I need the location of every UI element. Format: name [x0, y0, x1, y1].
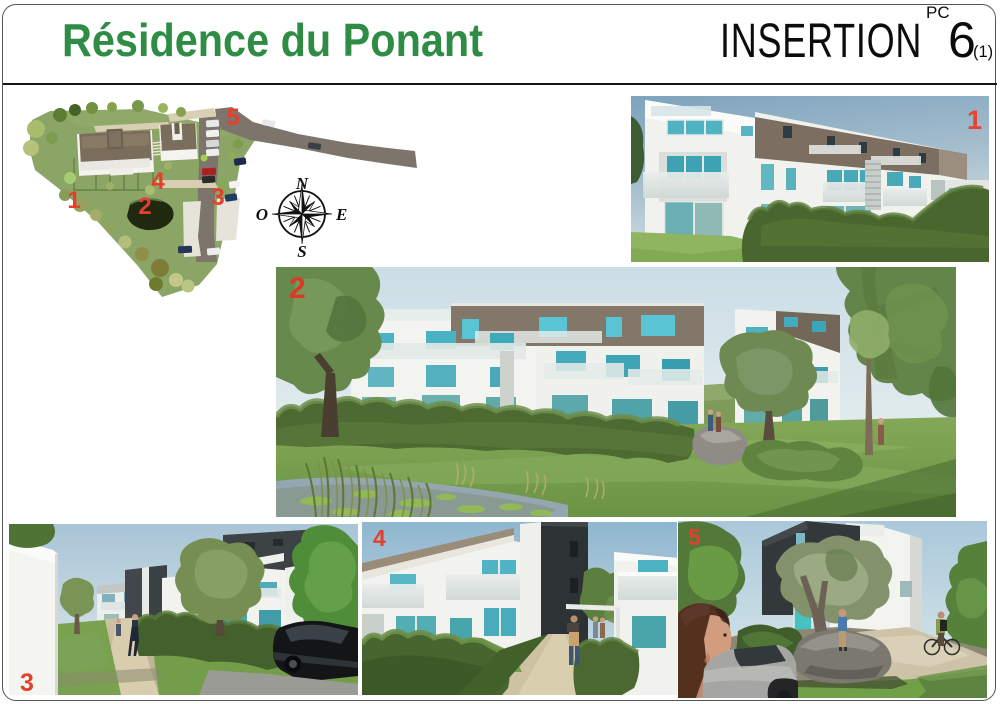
svg-text:4: 4 [151, 168, 165, 195]
svg-text:3: 3 [211, 184, 224, 211]
svg-text:1: 1 [67, 187, 80, 214]
svg-text:4: 4 [373, 525, 386, 551]
svg-text:2: 2 [289, 272, 306, 305]
svg-text:2: 2 [138, 193, 151, 220]
svg-text:S: S [297, 242, 306, 261]
svg-text:3: 3 [20, 669, 34, 695]
svg-text:E: E [335, 205, 347, 224]
svg-text:1: 1 [967, 105, 982, 135]
svg-text:O: O [256, 205, 268, 224]
svg-text:5: 5 [226, 104, 239, 131]
svg-text:N: N [295, 174, 309, 193]
svg-text:5: 5 [688, 524, 701, 550]
